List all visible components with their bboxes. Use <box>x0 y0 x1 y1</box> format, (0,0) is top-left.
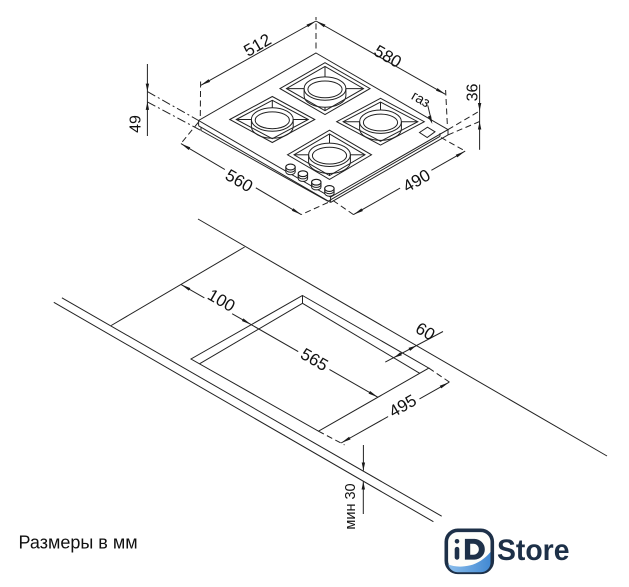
svg-text:Размеры в мм: Размеры в мм <box>19 533 138 553</box>
svg-text:512: 512 <box>240 30 274 61</box>
svg-text:Store: Store <box>497 534 570 567</box>
svg-text:газ: газ <box>409 87 433 110</box>
svg-text:580: 580 <box>371 41 405 72</box>
svg-text:36: 36 <box>464 84 481 102</box>
svg-text:60: 60 <box>412 319 438 345</box>
svg-text:мин 30: мин 30 <box>343 483 359 529</box>
svg-text:49: 49 <box>127 115 144 133</box>
